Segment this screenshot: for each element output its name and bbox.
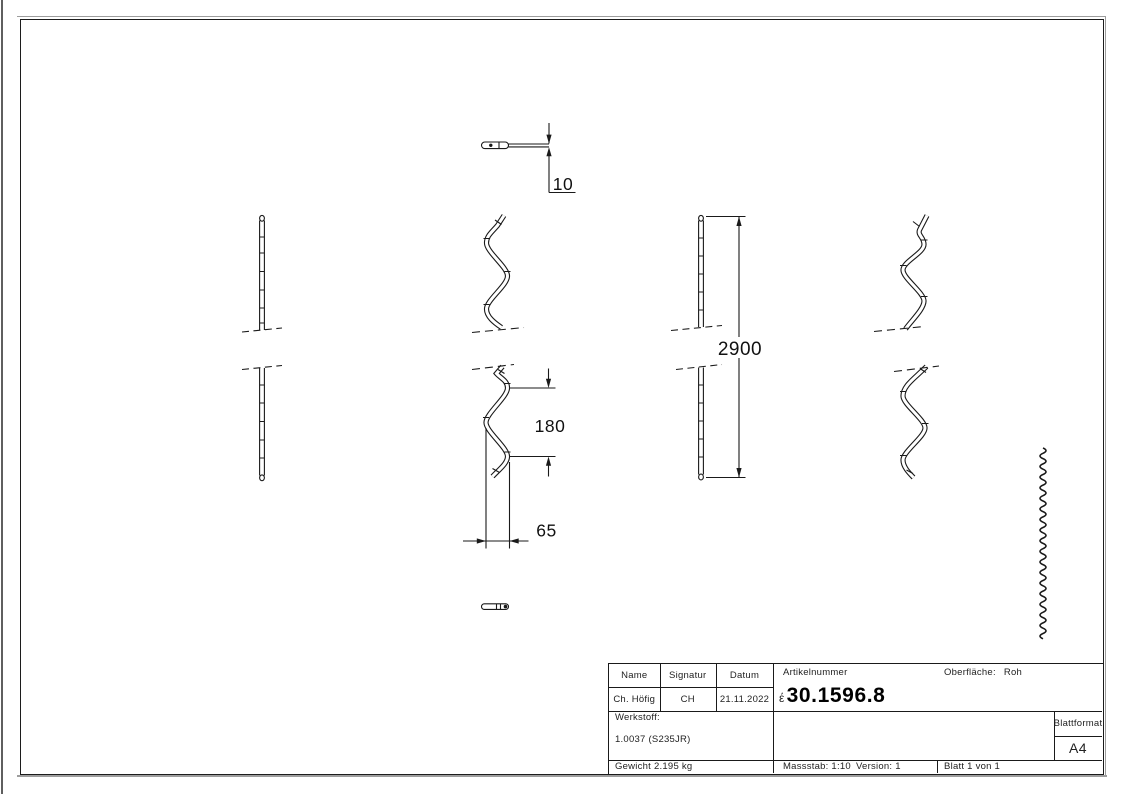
title-block: Name Signatur Datum Ch. Höfig CH 21.11.2… <box>608 663 1104 775</box>
tb-scale: Massstab: 1:10 <box>783 760 858 773</box>
tb-line <box>773 664 774 773</box>
dim-wave-width-label: 65 <box>536 521 556 541</box>
dim-wave-height: 180 <box>510 369 565 477</box>
view-wave-right-top <box>874 216 928 332</box>
tb-version: Version: 1 <box>856 760 931 773</box>
dim-total-length: 2900 <box>706 217 762 478</box>
tb-article-prefix: έ <box>779 691 785 705</box>
view-top-thickness <box>482 142 550 149</box>
tb-name-value: Ch. Höfig <box>609 687 660 711</box>
dim-wave-width: 65 <box>463 428 557 549</box>
tb-name-label: Name <box>609 664 660 687</box>
tb-material-label: Werkstoff: <box>615 710 765 724</box>
tb-weight: Gewicht 2.195 kg <box>615 760 765 773</box>
tb-sheet-count: Blatt 1 von 1 <box>944 760 1064 773</box>
view-bottom-capsule <box>482 604 509 610</box>
tb-material-value: 1.0037 (S235JR) <box>615 732 765 746</box>
tb-line <box>937 760 938 773</box>
view-front-bar-left <box>242 215 282 480</box>
view-full-wave-miniature <box>1040 448 1046 639</box>
tb-signature-value: CH <box>660 687 717 711</box>
dim-total-length-label: 2900 <box>718 339 762 360</box>
tb-format-value: A4 <box>1054 736 1102 760</box>
dim-wave-height-label: 180 <box>535 416 566 436</box>
tb-signature-label: Signatur <box>660 664 717 687</box>
tb-date-value: 21.11.2022 <box>716 687 773 711</box>
tb-surface-value: Roh <box>1004 667 1022 678</box>
view-wave-right-bottom <box>894 366 939 478</box>
drawing-sheet: 10 <box>0 0 1123 794</box>
tb-format-label: Blattformat <box>1054 711 1102 736</box>
dim-thickness: 10 <box>546 123 575 194</box>
tb-surface-label: Oberfläche: <box>944 667 996 678</box>
tb-article-label: Artikelnummer <box>783 665 903 679</box>
dim-thickness-label: 10 <box>553 174 573 194</box>
tb-surface: Oberfläche: Roh <box>944 665 1064 679</box>
view-front-wave-middle-bottom <box>472 365 514 477</box>
view-front-wave-middle-top <box>472 216 524 333</box>
tb-article-number: έ 30.1596.8 <box>779 684 885 708</box>
tb-date-label: Datum <box>716 664 773 687</box>
view-side-bar-2900 <box>671 215 722 480</box>
